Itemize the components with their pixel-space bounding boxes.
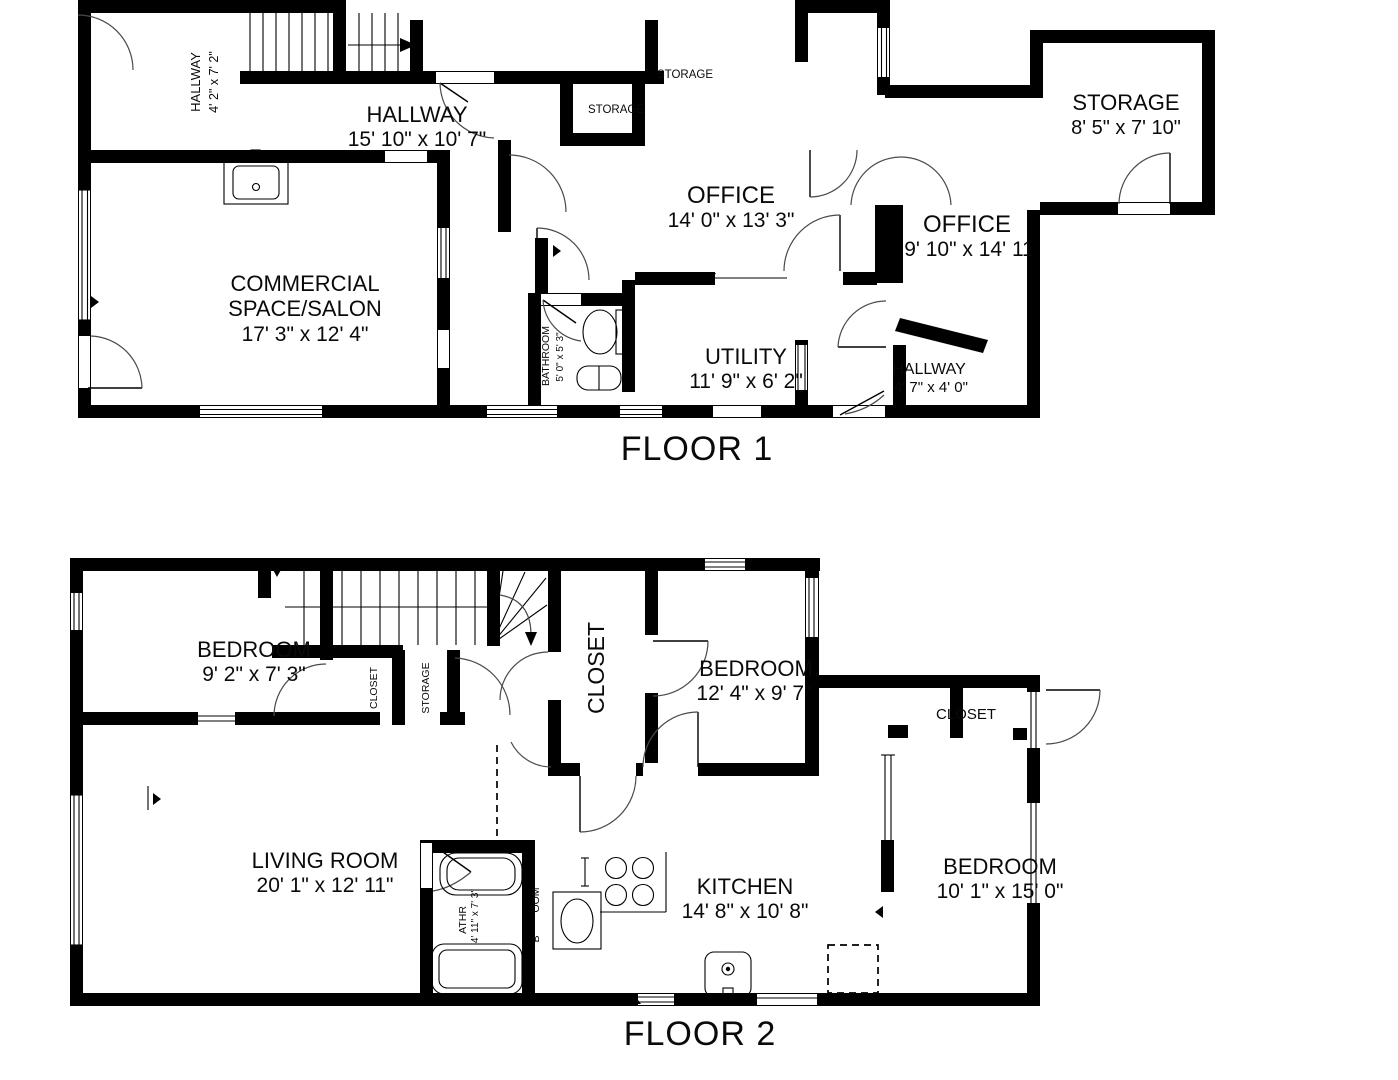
room-label-commercial-name2: SPACE/SALON [228, 296, 382, 321]
room-label-hallway-right-name: HALLWAY [892, 361, 966, 378]
room-label-office-main-name: OFFICE [687, 182, 775, 209]
shower-fixture [432, 944, 522, 994]
room-label-commercial-dims: 17' 3" x 12' 4" [242, 323, 369, 346]
room-label-hallway-small-dims: 4' 2" x 7' 2" [207, 51, 221, 113]
room-label-bathroom2-dims: 4' 11" x 7' 3" [470, 889, 481, 944]
floor1-fixtures [224, 150, 628, 390]
label-fragment-oom: OOM [530, 887, 542, 912]
floor2-stairs [272, 568, 547, 646]
room-label-hallway-main-dims: 15' 10" x 10' 7" [348, 128, 487, 151]
room-label-bedroom-left-dims: 9' 2" x 7' 3" [202, 663, 305, 686]
room-label-storage-top: STORAGE [657, 69, 713, 81]
stove-fixture [600, 852, 666, 912]
room-label-bedroom-mid-dims: 12' 4" x 9' 7" [696, 682, 811, 705]
room-label-kitchen-name: KITCHEN [697, 874, 794, 899]
room-label-hallway-small-name: HALLWAY [188, 52, 203, 112]
room-label-bathroom2-name: ATHR [457, 906, 469, 934]
room-label-closet-large: CLOSET [583, 622, 609, 714]
room-label-kitchen-dims: 14' 8" x 10' 8" [682, 900, 809, 923]
room-label-storage-small: STORAGE [420, 662, 432, 713]
floor-plan-canvas: HALLWAY 4' 2" x 7' 2" HALLWAY 15' 10" x … [0, 0, 1398, 1080]
room-label-office-main-dims: 14' 0" x 13' 3" [668, 209, 795, 232]
room-label-storage-mid: STORAGE [588, 104, 644, 116]
room-label-bathroom1-name: BATHROOM [540, 326, 552, 386]
label-fragment-b: B [530, 935, 542, 942]
room-label-hallway-right-dims: 4' 7" x 4' 0" [894, 379, 968, 396]
toilet-fixture [583, 310, 628, 354]
floor2-title: FLOOR 2 [624, 1015, 776, 1053]
room-label-living-room-name: LIVING ROOM [252, 848, 399, 873]
room-label-bedroom-right-name: BEDROOM [943, 854, 1057, 879]
floor2-walls [70, 558, 1040, 1006]
room-label-storage-right-name: STORAGE [1072, 90, 1179, 115]
room-label-office-right-name: OFFICE [923, 211, 1011, 238]
room-label-utility-name: UTILITY [705, 344, 787, 369]
floor1-title: FLOOR 1 [621, 430, 773, 468]
room-label-bedroom-right-dims: 10' 1" x 15' 0" [937, 880, 1064, 903]
room-label-storage-right-dims: 8' 5" x 7' 10" [1071, 117, 1181, 139]
room-label-utility-dims: 11' 9" x 6' 2" [689, 370, 803, 393]
room-label-bathroom1-dims: 5' 0" x 5' 3" [555, 332, 566, 382]
room-label-living-room-dims: 20' 1" x 12' 11" [257, 874, 394, 897]
room-label-hallway-main-name: HALLWAY [366, 102, 467, 127]
bathroom-sink-fixture [577, 366, 621, 390]
room-label-commercial-name1: COMMERCIAL [230, 271, 379, 296]
room-label-office-right-dims: 9' 10" x 14' 11 [904, 238, 1034, 261]
dashed-appliance-outline [828, 945, 878, 993]
floor-plan-drawing: HALLWAY 4' 2" x 7' 2" HALLWAY 15' 10" x … [0, 0, 1398, 1080]
room-label-closet-small: CLOSET [368, 666, 380, 709]
room-label-closet-right: CLOSET [936, 706, 996, 723]
room-label-bedroom-mid-name: BEDROOM [699, 656, 813, 681]
floor1-walls [78, 0, 1215, 418]
kitchen-sink-left-fixture [553, 858, 601, 949]
salon-sink-fixture [224, 150, 288, 204]
kitchen-sink-bottom-fixture [705, 952, 751, 997]
room-label-bedroom-left-name: BEDROOM [197, 637, 311, 662]
